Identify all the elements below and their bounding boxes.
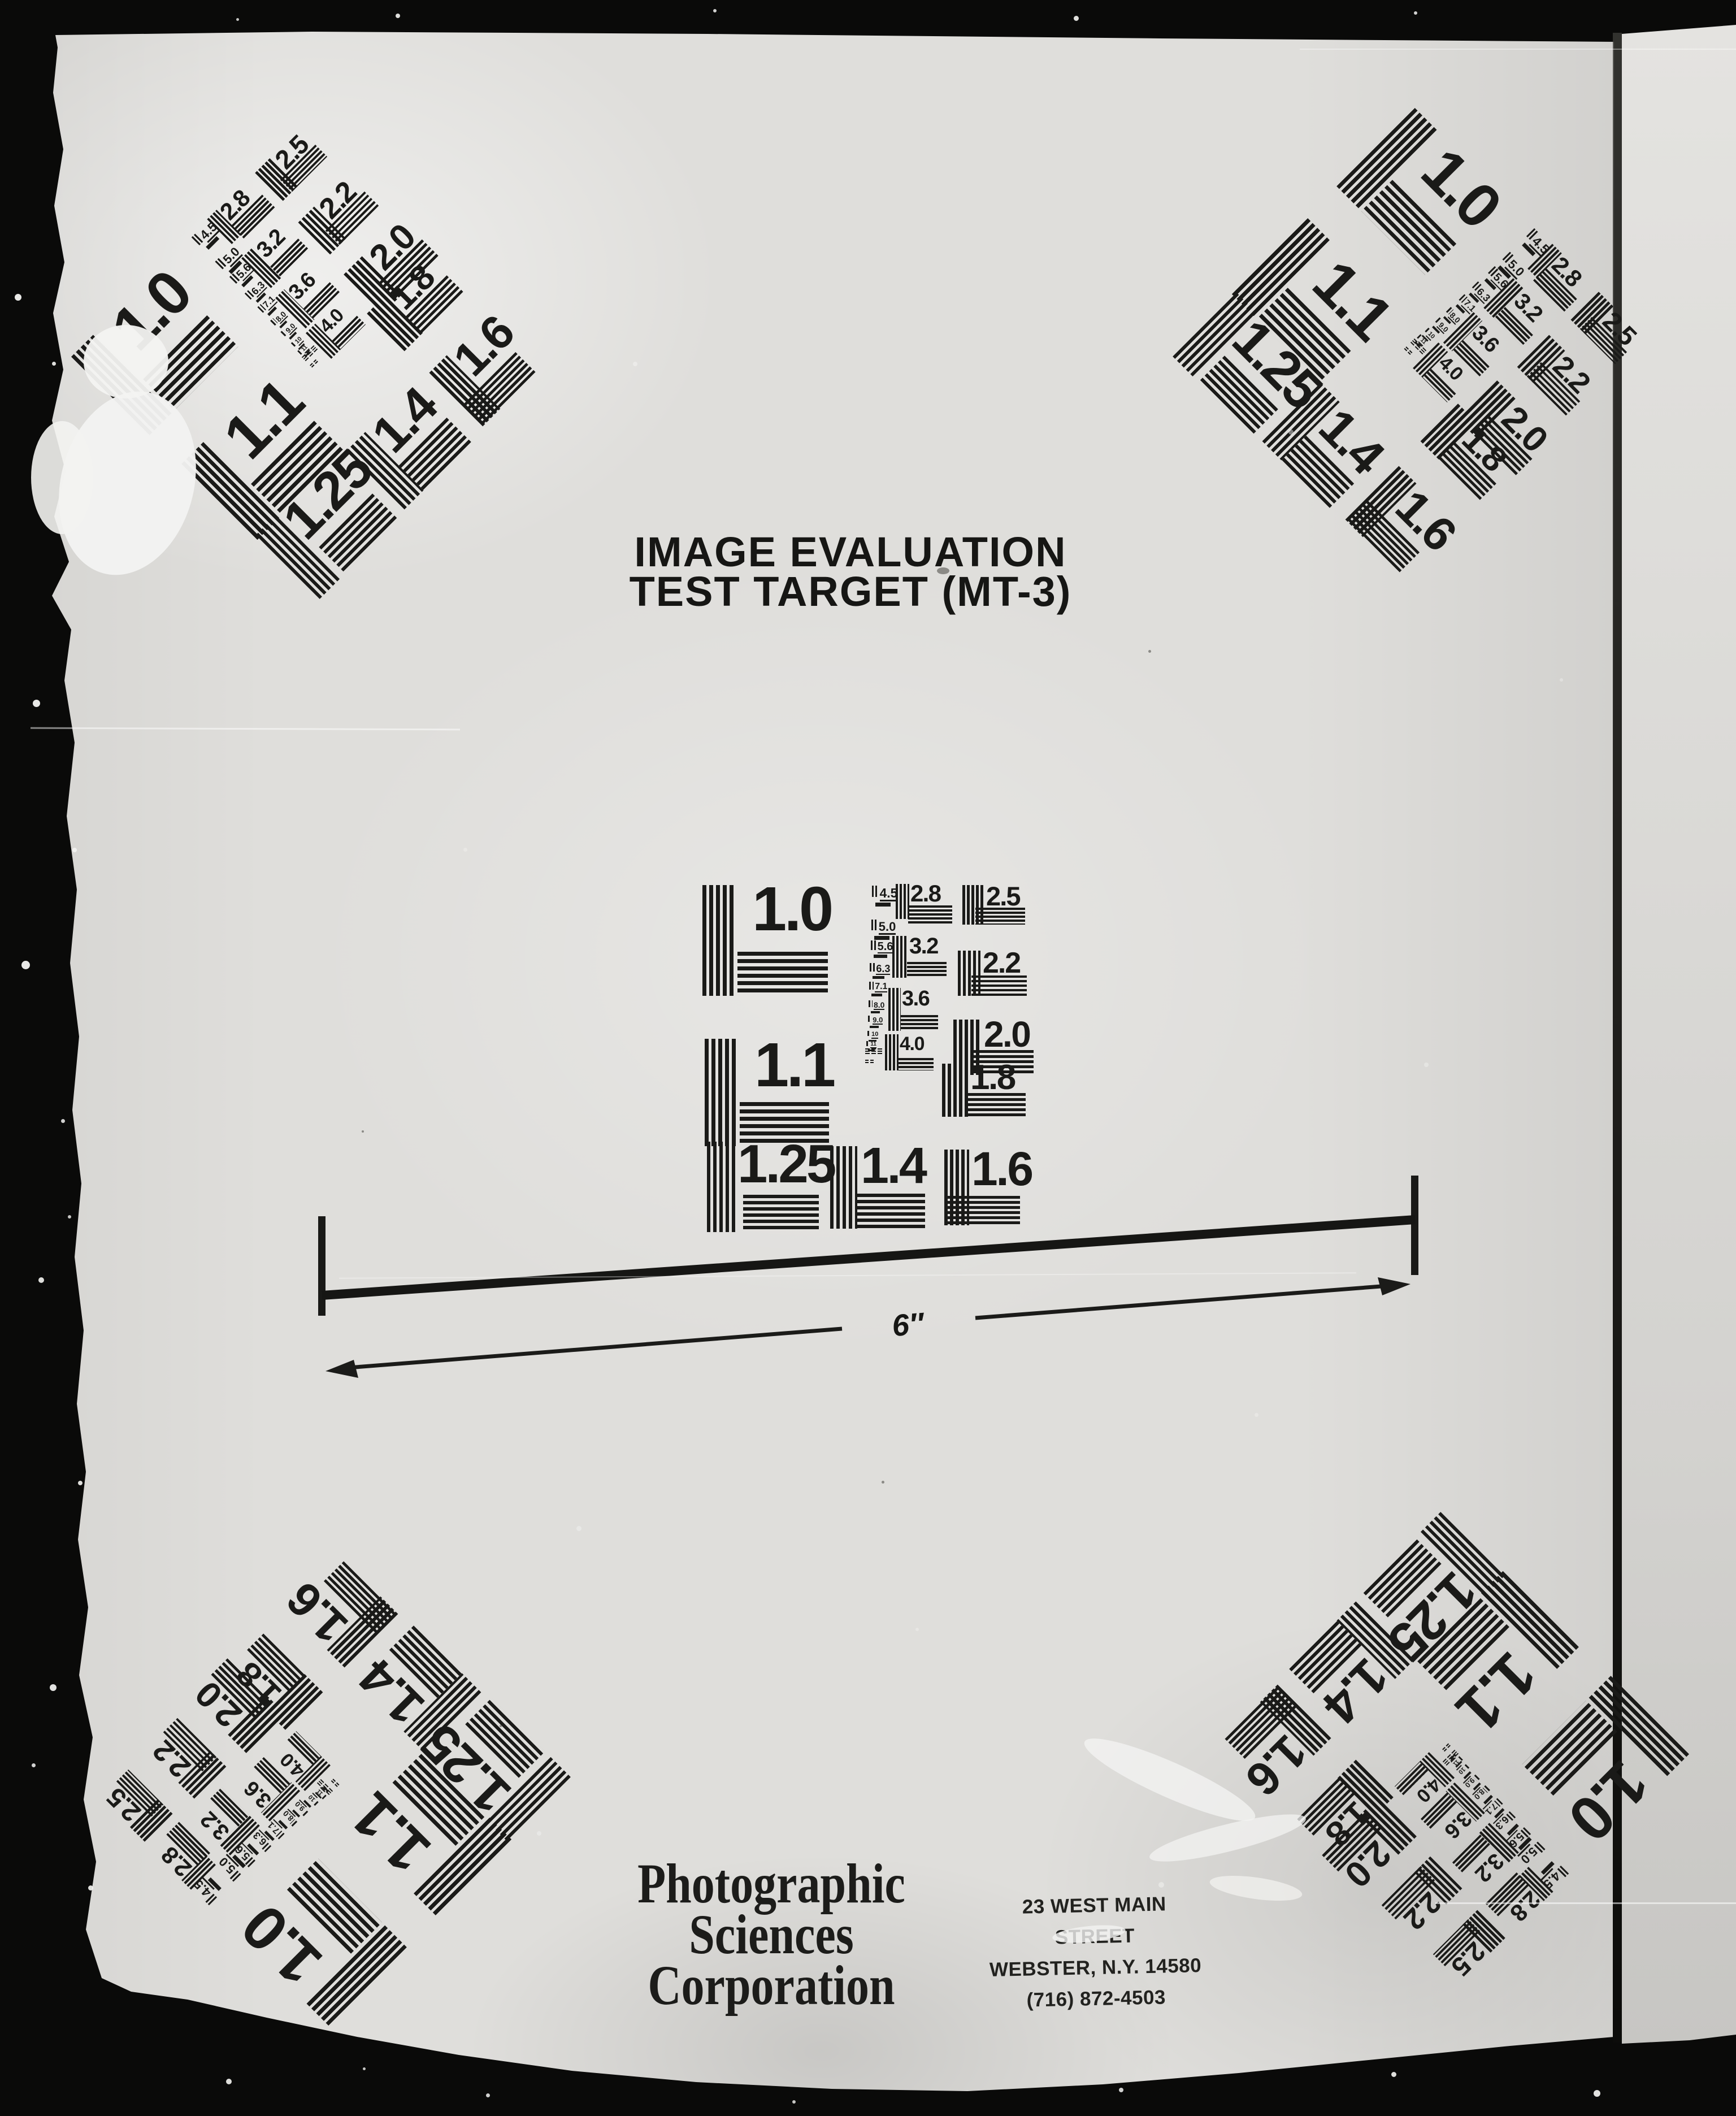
horizontal-bars (966, 1093, 1026, 1117)
address-line-2: WEBSTER, N.Y. 14580 (988, 1950, 1203, 1985)
dust-speck (15, 294, 21, 301)
ladder-item-5.6: 5.6 (871, 940, 893, 958)
block-value-label: 2.8 (910, 882, 940, 905)
horizontal-bars (971, 975, 1027, 996)
ladder-value-label: 9.0 (873, 1016, 883, 1025)
ladder-item-8.0: 8.0 (869, 1000, 884, 1013)
ladder-bar (869, 982, 874, 990)
micro-marks-cluster (865, 1047, 884, 1067)
ladder-value-label: 5.6 (878, 941, 893, 953)
ladder-item-10: 10 (867, 1031, 879, 1042)
block-value-label: 1.0 (752, 878, 831, 940)
scale-arrow-line-right (975, 1286, 1381, 1318)
ladder-value-label: 7.1 (875, 982, 887, 992)
block-value-label: 3.2 (909, 935, 938, 957)
block-value-label: 2.0 (984, 1016, 1030, 1052)
ladder-bar (867, 1031, 871, 1036)
scale-end-bar-right (1411, 1176, 1418, 1275)
vertical-bars (896, 884, 909, 919)
dark-fleck (500, 1725, 502, 1727)
scale-label: 6″ (891, 1307, 926, 1343)
dust-speck (1158, 1882, 1164, 1888)
ladder-bar (866, 1041, 869, 1046)
dust-speck (88, 1885, 93, 1890)
organization-line-3: Corporation (609, 1960, 934, 2011)
dust-speck (61, 1119, 65, 1123)
ladder-item-4.5: 4.5 (872, 886, 897, 907)
dust-speck (537, 1831, 541, 1836)
ladder-bar (868, 1016, 872, 1022)
ladder-value-label: 8.0 (874, 1001, 884, 1010)
six-inch-scale-bar: 6″ (305, 1153, 1435, 1424)
organization-name: Photographic Sciences Corporation (609, 1858, 934, 2011)
ladder-underbar (871, 994, 882, 996)
dust-speck (72, 848, 77, 852)
white-blotch-2 (84, 325, 168, 398)
dust-speck (463, 848, 467, 852)
title-line-2: TEST TARGET (MT-3) (627, 572, 1074, 612)
dust-speck (38, 1277, 44, 1283)
dust-speck (21, 961, 30, 969)
scale-reference-line (322, 1220, 1415, 1295)
dust-speck (363, 2067, 366, 2070)
dust-speck (50, 1684, 57, 1691)
horizontal-bars (901, 1015, 938, 1030)
address-block: 23 WEST MAIN STREET WEBSTER, N.Y. 14580 … (987, 1888, 1204, 2017)
block-value-label: 2.5 (986, 883, 1020, 909)
dust-speck (1074, 16, 1079, 21)
ladder-underbar (875, 903, 891, 907)
organization-line-2: Sciences (609, 1909, 934, 1960)
ladder-value-label: 6.3 (876, 964, 890, 975)
title-line-1: IMAGE EVALUATION (627, 532, 1074, 572)
block-value-label: 2.2 (983, 948, 1020, 978)
white-blotch-3 (31, 421, 93, 534)
organization-line-1: Photographic (609, 1858, 934, 1909)
ladder-underbar (870, 1026, 879, 1028)
vertical-bars (705, 1039, 736, 1146)
ladder-item-6.3: 6.3 (870, 963, 890, 979)
ladder-underbar (873, 976, 885, 979)
vertical-bars (885, 1034, 899, 1070)
ladder-bar (870, 963, 875, 972)
dark-fleck (882, 1481, 884, 1484)
dust-speck (792, 2100, 796, 2104)
dust-speck (1560, 678, 1563, 682)
vertical-bars (702, 885, 734, 996)
microfilm-scan-canvas: IMAGE EVALUATION TEST TARGET (MT-3) 1.01… (0, 0, 1736, 2116)
ladder-value-label: 10 (871, 1031, 878, 1039)
scale-arrow-line-left (341, 1329, 842, 1368)
dust-speck (713, 9, 717, 12)
address-line-1: 23 WEST MAIN STREET (987, 1888, 1203, 1954)
dust-speck (68, 1215, 71, 1219)
vertical-bars (892, 936, 908, 978)
dark-fleck (937, 567, 949, 574)
ladder-underbar (874, 955, 887, 958)
ladder-value-label: 5.0 (879, 921, 896, 935)
title-block: IMAGE EVALUATION TEST TARGET (MT-3) (627, 532, 1074, 612)
ladder-underbar (871, 1011, 880, 1013)
horizontal-bars (975, 908, 1025, 925)
dust-speck (1288, 430, 1294, 435)
vertical-bars (888, 988, 901, 1031)
horizontal-bars (973, 1050, 1034, 1075)
dust-speck (915, 1628, 919, 1631)
dust-speck (1391, 2072, 1396, 2077)
address-line-3: (716) 872-4503 (988, 1981, 1204, 2017)
scale-end-bar-left (318, 1216, 325, 1316)
dust-speck (1414, 11, 1417, 15)
dust-speck (1594, 2090, 1600, 2097)
ladder-item-5.0: 5.0 (871, 920, 896, 940)
dust-speck (396, 14, 400, 18)
horizontal-bars (907, 962, 947, 978)
dust-speck (1119, 2088, 1123, 2092)
dark-fleck (362, 1130, 364, 1133)
ladder-bar (871, 920, 878, 930)
dust-speck (226, 2079, 232, 2084)
ladder-bar (871, 940, 876, 950)
horizontal-bars (899, 1058, 934, 1070)
dark-fleck (1148, 650, 1151, 653)
ladder-item-7.1: 7.1 (869, 982, 887, 996)
ladder-bar (872, 886, 879, 897)
dust-speck (576, 1526, 581, 1531)
ladder-underbar (874, 936, 889, 940)
dust-speck (52, 362, 56, 366)
block-value-label: 3.6 (902, 988, 929, 1009)
horizontal-bars (908, 905, 952, 925)
ladder-bar (869, 1000, 873, 1007)
block-value-label: 4.0 (900, 1034, 924, 1053)
dust-speck (633, 362, 637, 366)
film-scratch (1300, 49, 1736, 50)
block-value-label: 1.1 (754, 1034, 834, 1096)
horizontal-bars (737, 952, 828, 996)
dust-speck (1424, 1063, 1429, 1067)
scale-arrowhead-left (325, 1360, 358, 1378)
dust-speck (33, 700, 40, 707)
ladder-value-label: 4.5 (880, 887, 898, 901)
scale-arrowhead-right (1378, 1277, 1410, 1295)
dust-speck (486, 2093, 490, 2097)
dust-speck (78, 1481, 83, 1485)
dust-speck (236, 18, 239, 21)
ladder-item-9.0: 9.0 (868, 1016, 883, 1028)
dust-speck (32, 1763, 36, 1767)
film-scratch (1435, 1902, 1736, 1904)
dust-speck (1255, 1413, 1258, 1417)
